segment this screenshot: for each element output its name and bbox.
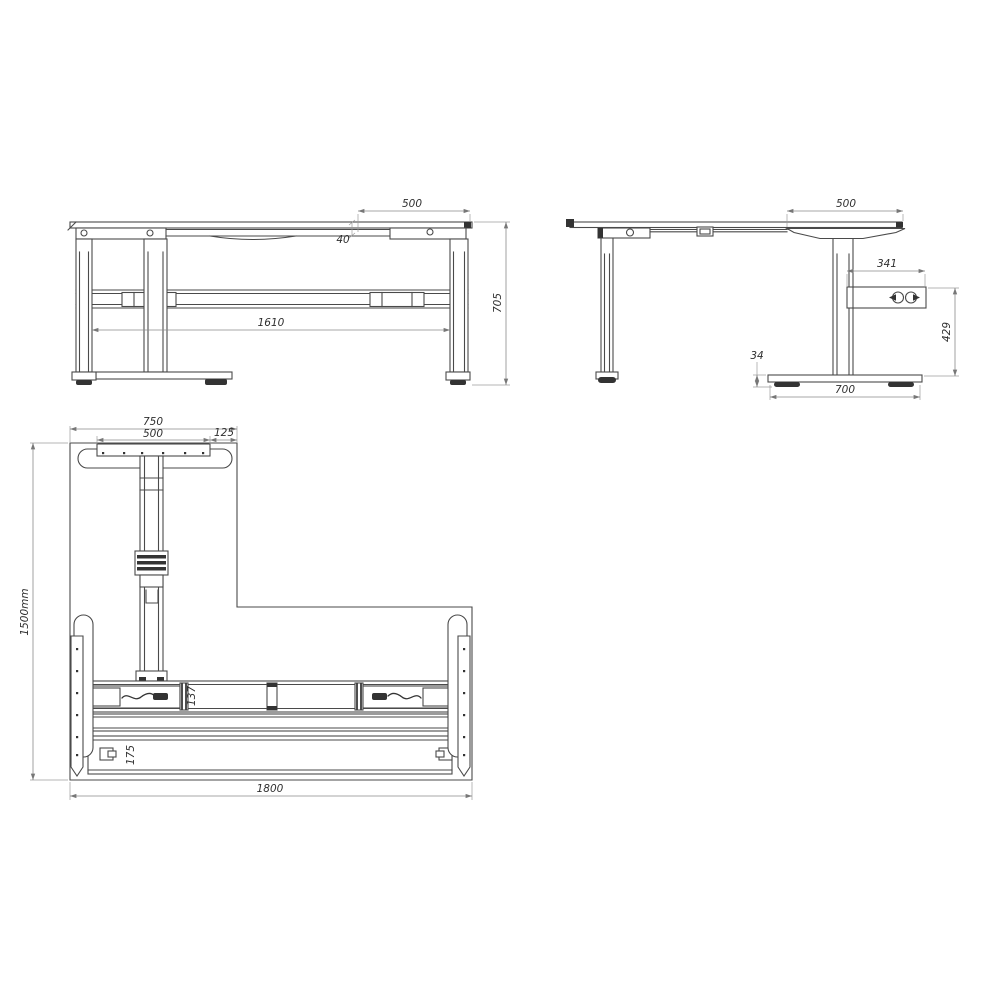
side-dim-top-depth-label: 500	[836, 198, 856, 210]
plan-right-drive	[363, 686, 459, 708]
side-dim-control-box-length: 341	[847, 258, 925, 286]
drawing-canvas: 500 40 1610 705	[0, 0, 1000, 1000]
front-dim-leg-spacing-label: 1610	[258, 317, 285, 329]
side-support-rail	[598, 227, 905, 239]
side-dim-control-box-height-label: 429	[941, 322, 953, 342]
plan-dim-return-width-label: 750	[143, 416, 163, 428]
plan-column-foot-plate	[136, 671, 167, 682]
front-crossbeam	[76, 290, 468, 308]
plan-left-foot	[71, 615, 93, 776]
side-dim-foot-length-label: 700	[835, 384, 855, 396]
plan-dim-depth: 1500mm	[19, 443, 68, 780]
plan-right-foot	[448, 615, 470, 776]
front-dim-overhang-label: 500	[402, 198, 422, 210]
plan-return-edge-rail	[90, 714, 450, 731]
plan-cable-clamp	[135, 551, 168, 575]
side-desktop	[566, 219, 903, 228]
front-corner-leg	[144, 239, 167, 372]
side-top-bracket	[787, 229, 905, 239]
plan-dim-edge-offset-label: 125	[214, 427, 234, 439]
plan-dim-bracket-length-label: 500	[143, 428, 163, 440]
side-view: 500 341 429 34 700	[566, 198, 959, 400]
side-dim-control-box-length-label: 341	[877, 258, 897, 270]
plan-beam-joint-right	[355, 683, 363, 710]
plan-rear-rail	[88, 736, 452, 774]
front-left-leg	[76, 239, 92, 372]
side-dim-control-box-height: 429	[924, 288, 959, 376]
plan-dim-depth-label: 1500mm	[19, 588, 31, 635]
plan-dim-crossbeam-label: 137	[186, 686, 198, 706]
plan-dim-edge-offset: 125	[210, 427, 237, 440]
side-left-leg	[596, 238, 618, 383]
front-support-rail	[76, 228, 466, 240]
plan-dim-rear-rail-label: 175	[125, 745, 137, 765]
front-dim-thickness-label: 40	[336, 234, 350, 246]
side-dim-foot-height-label: 34	[750, 350, 763, 362]
plan-dim-overall-width: 1800	[70, 782, 472, 800]
front-left-foot	[72, 372, 96, 385]
plan-crossbeam	[74, 681, 461, 712]
front-right-foot	[446, 372, 470, 385]
plan-dim-bracket-length: 500	[97, 428, 210, 444]
plan-lifting-column	[135, 456, 168, 682]
front-telescopic-joint-right	[370, 293, 424, 307]
plan-center-bracket	[267, 683, 277, 710]
side-control-box	[847, 287, 926, 308]
front-right-leg	[450, 239, 468, 372]
front-dim-height-label: 705	[492, 293, 504, 313]
technical-drawing: 500 40 1610 705	[0, 0, 1000, 1000]
plan-view: 137 175 750 500 125 1500mm	[19, 416, 472, 800]
plan-dim-overall-width-label: 1800	[257, 783, 284, 795]
front-corner-foot	[96, 372, 232, 385]
front-dim-height: 705	[472, 222, 510, 385]
plan-left-drive	[84, 686, 180, 708]
front-view: 500 40 1610 705	[68, 198, 510, 385]
